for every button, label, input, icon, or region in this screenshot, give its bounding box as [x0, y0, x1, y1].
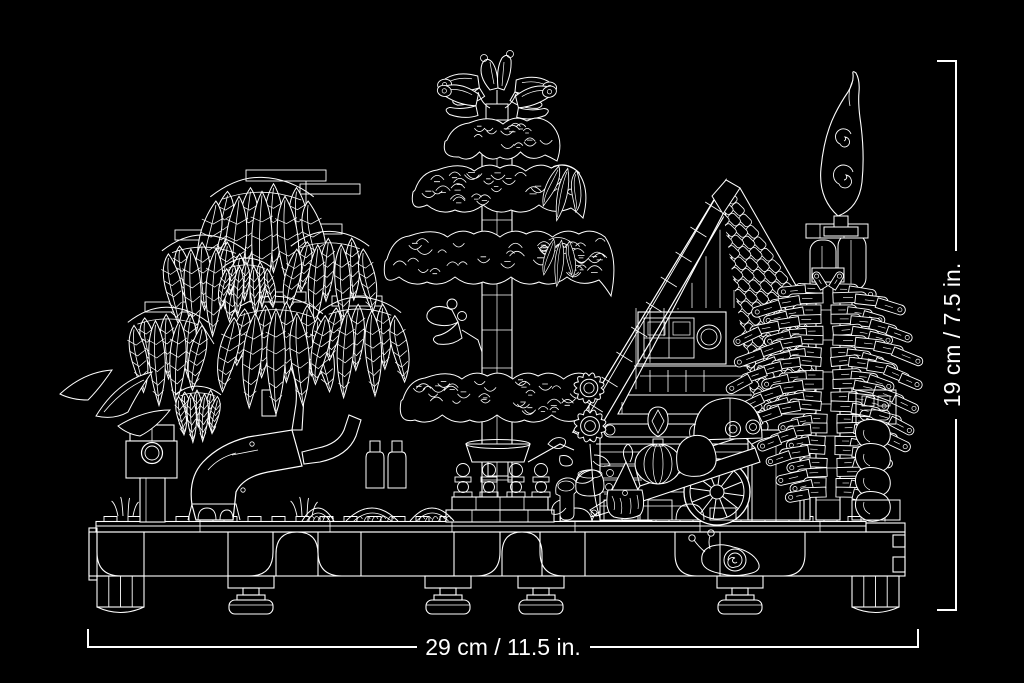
svg-text:29 cm / 11.5 in.: 29 cm / 11.5 in. [425, 634, 581, 660]
svg-text:19 cm / 7.5 in.: 19 cm / 7.5 in. [939, 263, 965, 407]
